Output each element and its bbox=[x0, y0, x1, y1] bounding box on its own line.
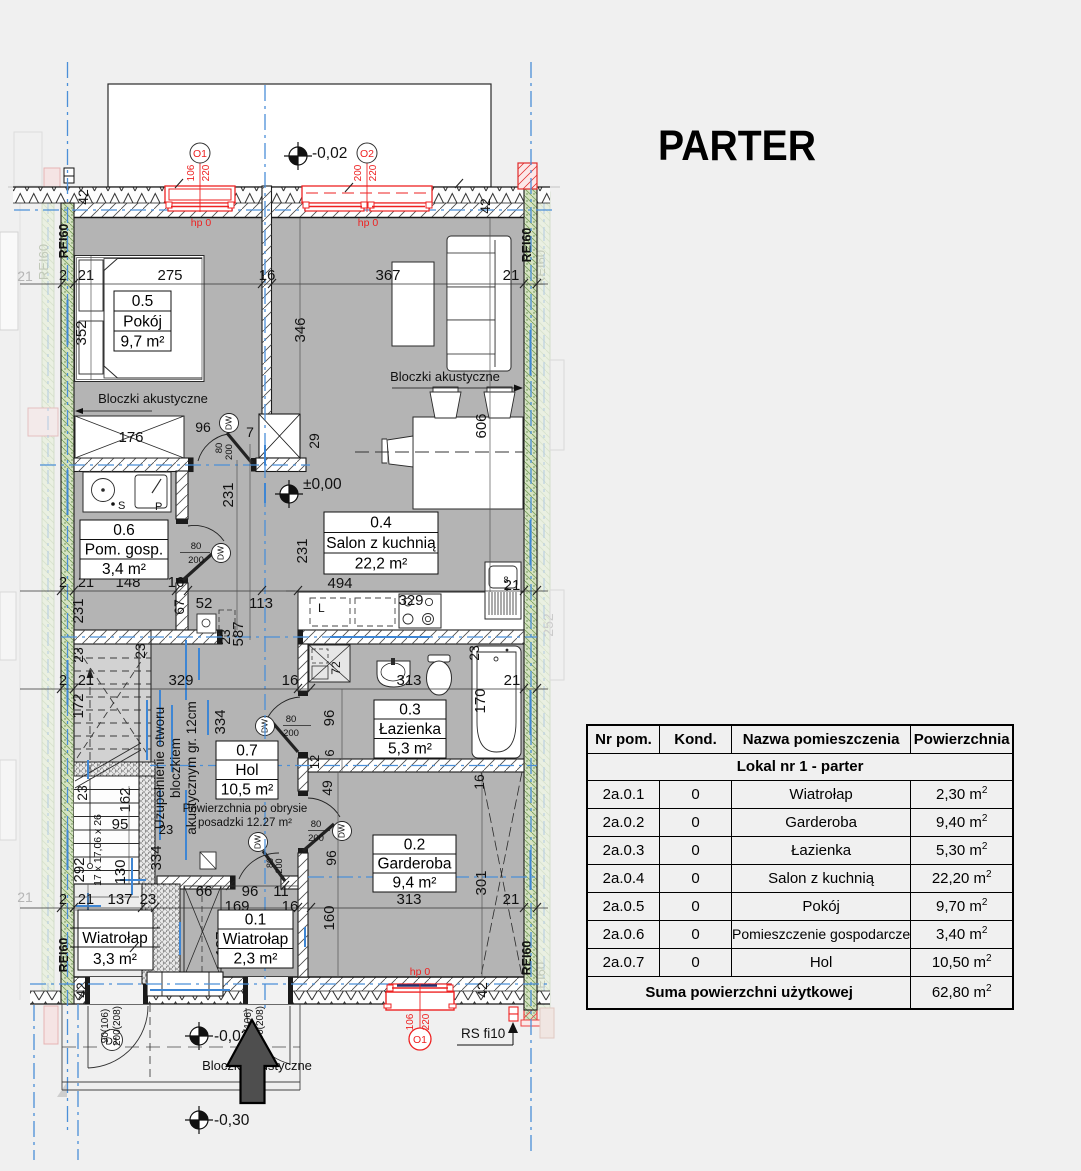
svg-text:O1: O1 bbox=[413, 1034, 427, 1046]
svg-text:hp 0: hp 0 bbox=[191, 217, 212, 229]
svg-text:52: 52 bbox=[196, 595, 213, 612]
svg-text:DW: DW bbox=[223, 416, 233, 430]
svg-text:200: 200 bbox=[274, 858, 284, 873]
svg-text:Wiatrołap: Wiatrołap bbox=[82, 930, 147, 947]
svg-text:16: 16 bbox=[259, 267, 276, 284]
svg-text:0.1: 0.1 bbox=[245, 912, 267, 929]
svg-text:275: 275 bbox=[157, 267, 182, 284]
svg-text:21: 21 bbox=[503, 891, 520, 908]
svg-text:hp 0: hp 0 bbox=[358, 217, 379, 229]
svg-text:0.5: 0.5 bbox=[132, 293, 154, 310]
svg-text:42: 42 bbox=[474, 982, 490, 998]
svg-text:220: 220 bbox=[201, 164, 212, 181]
svg-text:0.4: 0.4 bbox=[370, 515, 392, 532]
svg-text:Łazienka: Łazienka bbox=[379, 721, 441, 738]
svg-text:23: 23 bbox=[74, 785, 90, 801]
svg-text:Wiatrołap: Wiatrołap bbox=[223, 931, 288, 948]
svg-text:Pokój: Pokój bbox=[123, 314, 162, 331]
svg-text:REI60: REI60 bbox=[36, 244, 51, 280]
svg-text:22,2 m²: 22,2 m² bbox=[355, 556, 408, 573]
svg-text:313: 313 bbox=[396, 891, 421, 908]
svg-text:0.2: 0.2 bbox=[404, 837, 426, 854]
svg-text:Salon z kuchnią: Salon z kuchnią bbox=[326, 535, 436, 552]
svg-text:3,4 m²: 3,4 m² bbox=[102, 561, 146, 578]
svg-text:170: 170 bbox=[472, 688, 489, 713]
svg-text:Bloczki akustyczne: Bloczki akustyczne bbox=[390, 369, 500, 384]
svg-text:42: 42 bbox=[75, 189, 91, 205]
svg-text:8: 8 bbox=[503, 575, 508, 585]
svg-text:-0,02: -0,02 bbox=[312, 145, 347, 162]
svg-text:494: 494 bbox=[327, 575, 352, 592]
svg-text:DW: DW bbox=[259, 719, 269, 733]
svg-text:21: 21 bbox=[78, 673, 94, 689]
svg-text:160: 160 bbox=[321, 905, 338, 930]
svg-text:12: 12 bbox=[307, 755, 322, 769]
svg-text:96: 96 bbox=[321, 710, 338, 727]
svg-text:231: 231 bbox=[294, 538, 311, 563]
svg-text:9,4 m²: 9,4 m² bbox=[393, 875, 437, 892]
svg-text:67: 67 bbox=[171, 599, 187, 615]
svg-text:606: 606 bbox=[473, 413, 490, 438]
svg-text:200: 200 bbox=[308, 833, 324, 844]
svg-text:367: 367 bbox=[375, 267, 400, 284]
svg-text:O1: O1 bbox=[193, 148, 207, 160]
svg-text:16: 16 bbox=[168, 574, 185, 591]
svg-text:3,3 m²: 3,3 m² bbox=[93, 951, 137, 968]
svg-text:S: S bbox=[118, 500, 125, 512]
svg-text:113: 113 bbox=[249, 595, 273, 612]
svg-text:O2: O2 bbox=[360, 148, 374, 160]
svg-text:130: 130 bbox=[112, 859, 129, 884]
svg-text:80: 80 bbox=[311, 819, 322, 830]
svg-text:posadzki 12.27 m²: posadzki 12.27 m² bbox=[198, 817, 292, 829]
svg-text:REI60: REI60 bbox=[520, 228, 534, 263]
svg-text:±0,00: ±0,00 bbox=[303, 476, 342, 493]
svg-text:2,3 m²: 2,3 m² bbox=[234, 951, 278, 968]
svg-text:21: 21 bbox=[78, 892, 94, 908]
svg-text:96: 96 bbox=[195, 419, 211, 435]
svg-text:23: 23 bbox=[140, 891, 157, 908]
svg-text:292: 292 bbox=[71, 857, 88, 882]
svg-text:49: 49 bbox=[319, 780, 335, 796]
svg-text:RS fi10: RS fi10 bbox=[461, 1026, 505, 1041]
svg-text:137: 137 bbox=[107, 891, 132, 908]
svg-text:80: 80 bbox=[286, 714, 297, 725]
svg-text:L: L bbox=[318, 601, 325, 615]
svg-text:21: 21 bbox=[17, 268, 33, 284]
svg-text:21: 21 bbox=[17, 889, 33, 905]
svg-text:Hol: Hol bbox=[235, 762, 258, 779]
svg-text:334: 334 bbox=[212, 709, 229, 734]
svg-text:66: 66 bbox=[196, 883, 213, 900]
svg-text:bloczkiem: bloczkiem bbox=[168, 738, 183, 798]
svg-text:172: 172 bbox=[70, 693, 87, 718]
svg-text:21: 21 bbox=[78, 268, 94, 284]
svg-text:REI60: REI60 bbox=[57, 938, 71, 973]
svg-text:REI60: REI60 bbox=[57, 224, 71, 259]
svg-text:10,5 m²: 10,5 m² bbox=[221, 782, 274, 799]
svg-text:Powierzchnia po obrysie: Powierzchnia po obrysie bbox=[183, 803, 308, 815]
svg-text:200: 200 bbox=[353, 164, 364, 181]
svg-text:21: 21 bbox=[503, 267, 520, 284]
svg-text:313: 313 bbox=[396, 672, 421, 689]
svg-text:301: 301 bbox=[473, 870, 490, 895]
svg-text:200: 200 bbox=[188, 555, 204, 566]
svg-text:231: 231 bbox=[70, 598, 87, 623]
svg-text:106: 106 bbox=[405, 1013, 416, 1030]
svg-text:hp 0: hp 0 bbox=[410, 966, 431, 978]
svg-text:334: 334 bbox=[148, 845, 165, 870]
svg-text:80: 80 bbox=[191, 541, 202, 552]
svg-text:17 x 17,06 x 26: 17 x 17,06 x 26 bbox=[92, 814, 104, 886]
svg-text:5,3 m²: 5,3 m² bbox=[388, 741, 432, 758]
svg-text:42: 42 bbox=[73, 982, 89, 998]
svg-text:-0,30: -0,30 bbox=[214, 1112, 250, 1129]
svg-text:200: 200 bbox=[224, 444, 235, 460]
svg-text:0.7: 0.7 bbox=[236, 743, 258, 760]
svg-text:220: 220 bbox=[421, 1013, 432, 1030]
svg-text:6: 6 bbox=[322, 749, 337, 756]
svg-text:7: 7 bbox=[246, 424, 254, 440]
svg-text:Uzupełnienie otworu: Uzupełnienie otworu bbox=[152, 707, 167, 829]
svg-text:200(208): 200(208) bbox=[112, 1006, 123, 1046]
svg-text:220: 220 bbox=[368, 164, 379, 181]
svg-text:23: 23 bbox=[466, 645, 482, 661]
svg-text:DW: DW bbox=[252, 835, 262, 849]
svg-text:42: 42 bbox=[477, 198, 493, 214]
svg-text:23: 23 bbox=[132, 643, 148, 659]
svg-text:Garderoba: Garderoba bbox=[377, 856, 451, 873]
svg-text:Pom. gosp.: Pom. gosp. bbox=[85, 542, 163, 559]
svg-text:329: 329 bbox=[168, 672, 193, 689]
svg-text:95: 95 bbox=[112, 816, 129, 833]
svg-text:352: 352 bbox=[73, 320, 90, 345]
svg-text:16: 16 bbox=[471, 774, 487, 790]
svg-text:162: 162 bbox=[117, 787, 134, 812]
svg-text:23: 23 bbox=[70, 647, 86, 663]
svg-text:0.3: 0.3 bbox=[399, 702, 421, 719]
svg-text:16: 16 bbox=[282, 672, 299, 689]
svg-text:346: 346 bbox=[292, 317, 309, 342]
svg-text:200: 200 bbox=[283, 728, 299, 739]
svg-text:96: 96 bbox=[323, 850, 339, 866]
svg-text:29: 29 bbox=[306, 433, 322, 449]
svg-text:REI60: REI60 bbox=[520, 941, 534, 976]
svg-text:329: 329 bbox=[398, 592, 423, 609]
svg-text:231: 231 bbox=[220, 482, 237, 507]
svg-text:23: 23 bbox=[217, 629, 233, 645]
svg-text:0.6: 0.6 bbox=[113, 522, 135, 539]
svg-text:176: 176 bbox=[118, 429, 143, 446]
svg-text:252: 252 bbox=[540, 613, 556, 637]
svg-text:90(106): 90(106) bbox=[100, 1009, 111, 1043]
svg-text:Bloczki akustyczne: Bloczki akustyczne bbox=[98, 391, 208, 406]
svg-text:72: 72 bbox=[329, 661, 343, 675]
svg-text:21: 21 bbox=[504, 672, 521, 689]
svg-text:9,7 m²: 9,7 m² bbox=[121, 334, 165, 351]
svg-text:106: 106 bbox=[186, 164, 197, 181]
svg-text:DW: DW bbox=[215, 546, 225, 560]
svg-text:P: P bbox=[155, 501, 162, 513]
